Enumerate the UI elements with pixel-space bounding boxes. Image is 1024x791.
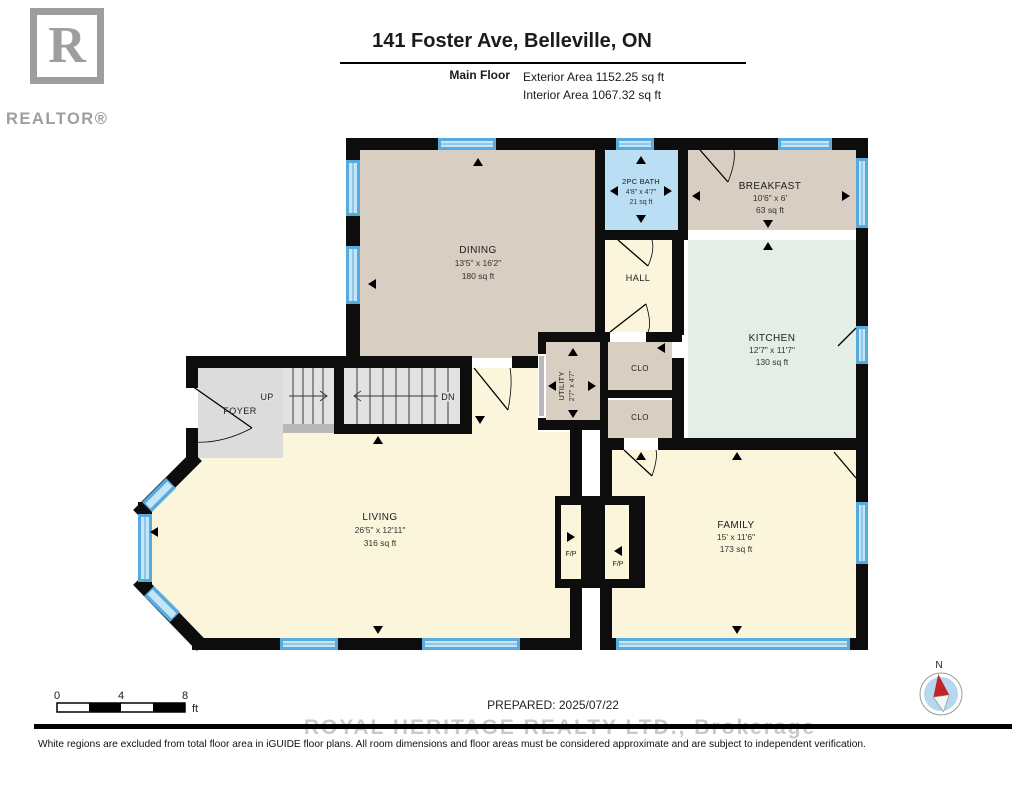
utility-dims: 2'7" x 4'7" (569, 370, 576, 401)
floor-plan-page: R REALTOR® 141 Foster Ave, Belleville, O… (0, 0, 1024, 791)
fireplace-right-label: F/P (613, 561, 624, 568)
breakfast-area: 63 sq ft (756, 205, 785, 215)
bath-name: 2PC BATH (622, 177, 660, 186)
floor-plan-drawing: DINING 13'5" x 16'2" 180 sq ft 2PC BATH … (0, 0, 1024, 791)
dining-dims: 13'5" x 16'2" (455, 258, 502, 268)
stairs-up-label: UP (260, 392, 273, 402)
breakfast-name: BREAKFAST (739, 181, 802, 192)
living-area: 316 sq ft (364, 538, 397, 548)
bath-dims: 4'8" x 4'7" (626, 189, 657, 196)
scale-unit: ft (192, 703, 198, 715)
breakfast-dims: 10'6" x 6' (753, 193, 788, 203)
hall-name: HALL (626, 273, 651, 283)
fireplace-left-label: F/P (566, 551, 577, 558)
utility-door (539, 356, 544, 416)
kitchen-area: 130 sq ft (756, 357, 789, 367)
closet1-name: CLO (631, 364, 649, 373)
hall-floor (605, 240, 672, 332)
living-name: LIVING (362, 512, 397, 523)
fireplace (555, 496, 645, 588)
scale-bar: 0 4 8 ft (54, 690, 198, 715)
kitchen-name: KITCHEN (749, 333, 796, 344)
closet2-name: CLO (631, 413, 649, 422)
bath-area: 21 sq ft (630, 199, 653, 206)
dining-name: DINING (459, 245, 496, 256)
fireplace-left-niche (561, 505, 581, 579)
stair-landing (283, 424, 334, 433)
scale-tick-0: 0 (54, 690, 60, 702)
kitchen-dims: 12'7" x 11'7" (749, 345, 795, 355)
footer-divider (34, 724, 1012, 729)
room-fills (146, 150, 856, 638)
dining-area: 180 sq ft (462, 271, 495, 281)
disclaimer-text: White regions are excluded from total fl… (38, 739, 866, 750)
living-dims: 26'5" x 12'11" (355, 525, 406, 535)
compass-north-label: N (935, 660, 942, 671)
foyer-name: FOYER (223, 406, 257, 416)
stairs-down-label: DN (441, 392, 455, 402)
utility-name: UTILITY (557, 371, 566, 400)
prepared-date: PREPARED: 2025/07/22 (487, 698, 619, 712)
family-area: 173 sq ft (720, 544, 753, 554)
family-name: FAMILY (717, 520, 754, 531)
scale-tick-4: 4 (118, 690, 124, 702)
scale-tick-8: 8 (182, 690, 188, 702)
family-dims: 15' x 11'6" (717, 532, 755, 542)
compass-icon: N (920, 660, 962, 715)
living-floor (146, 432, 570, 638)
